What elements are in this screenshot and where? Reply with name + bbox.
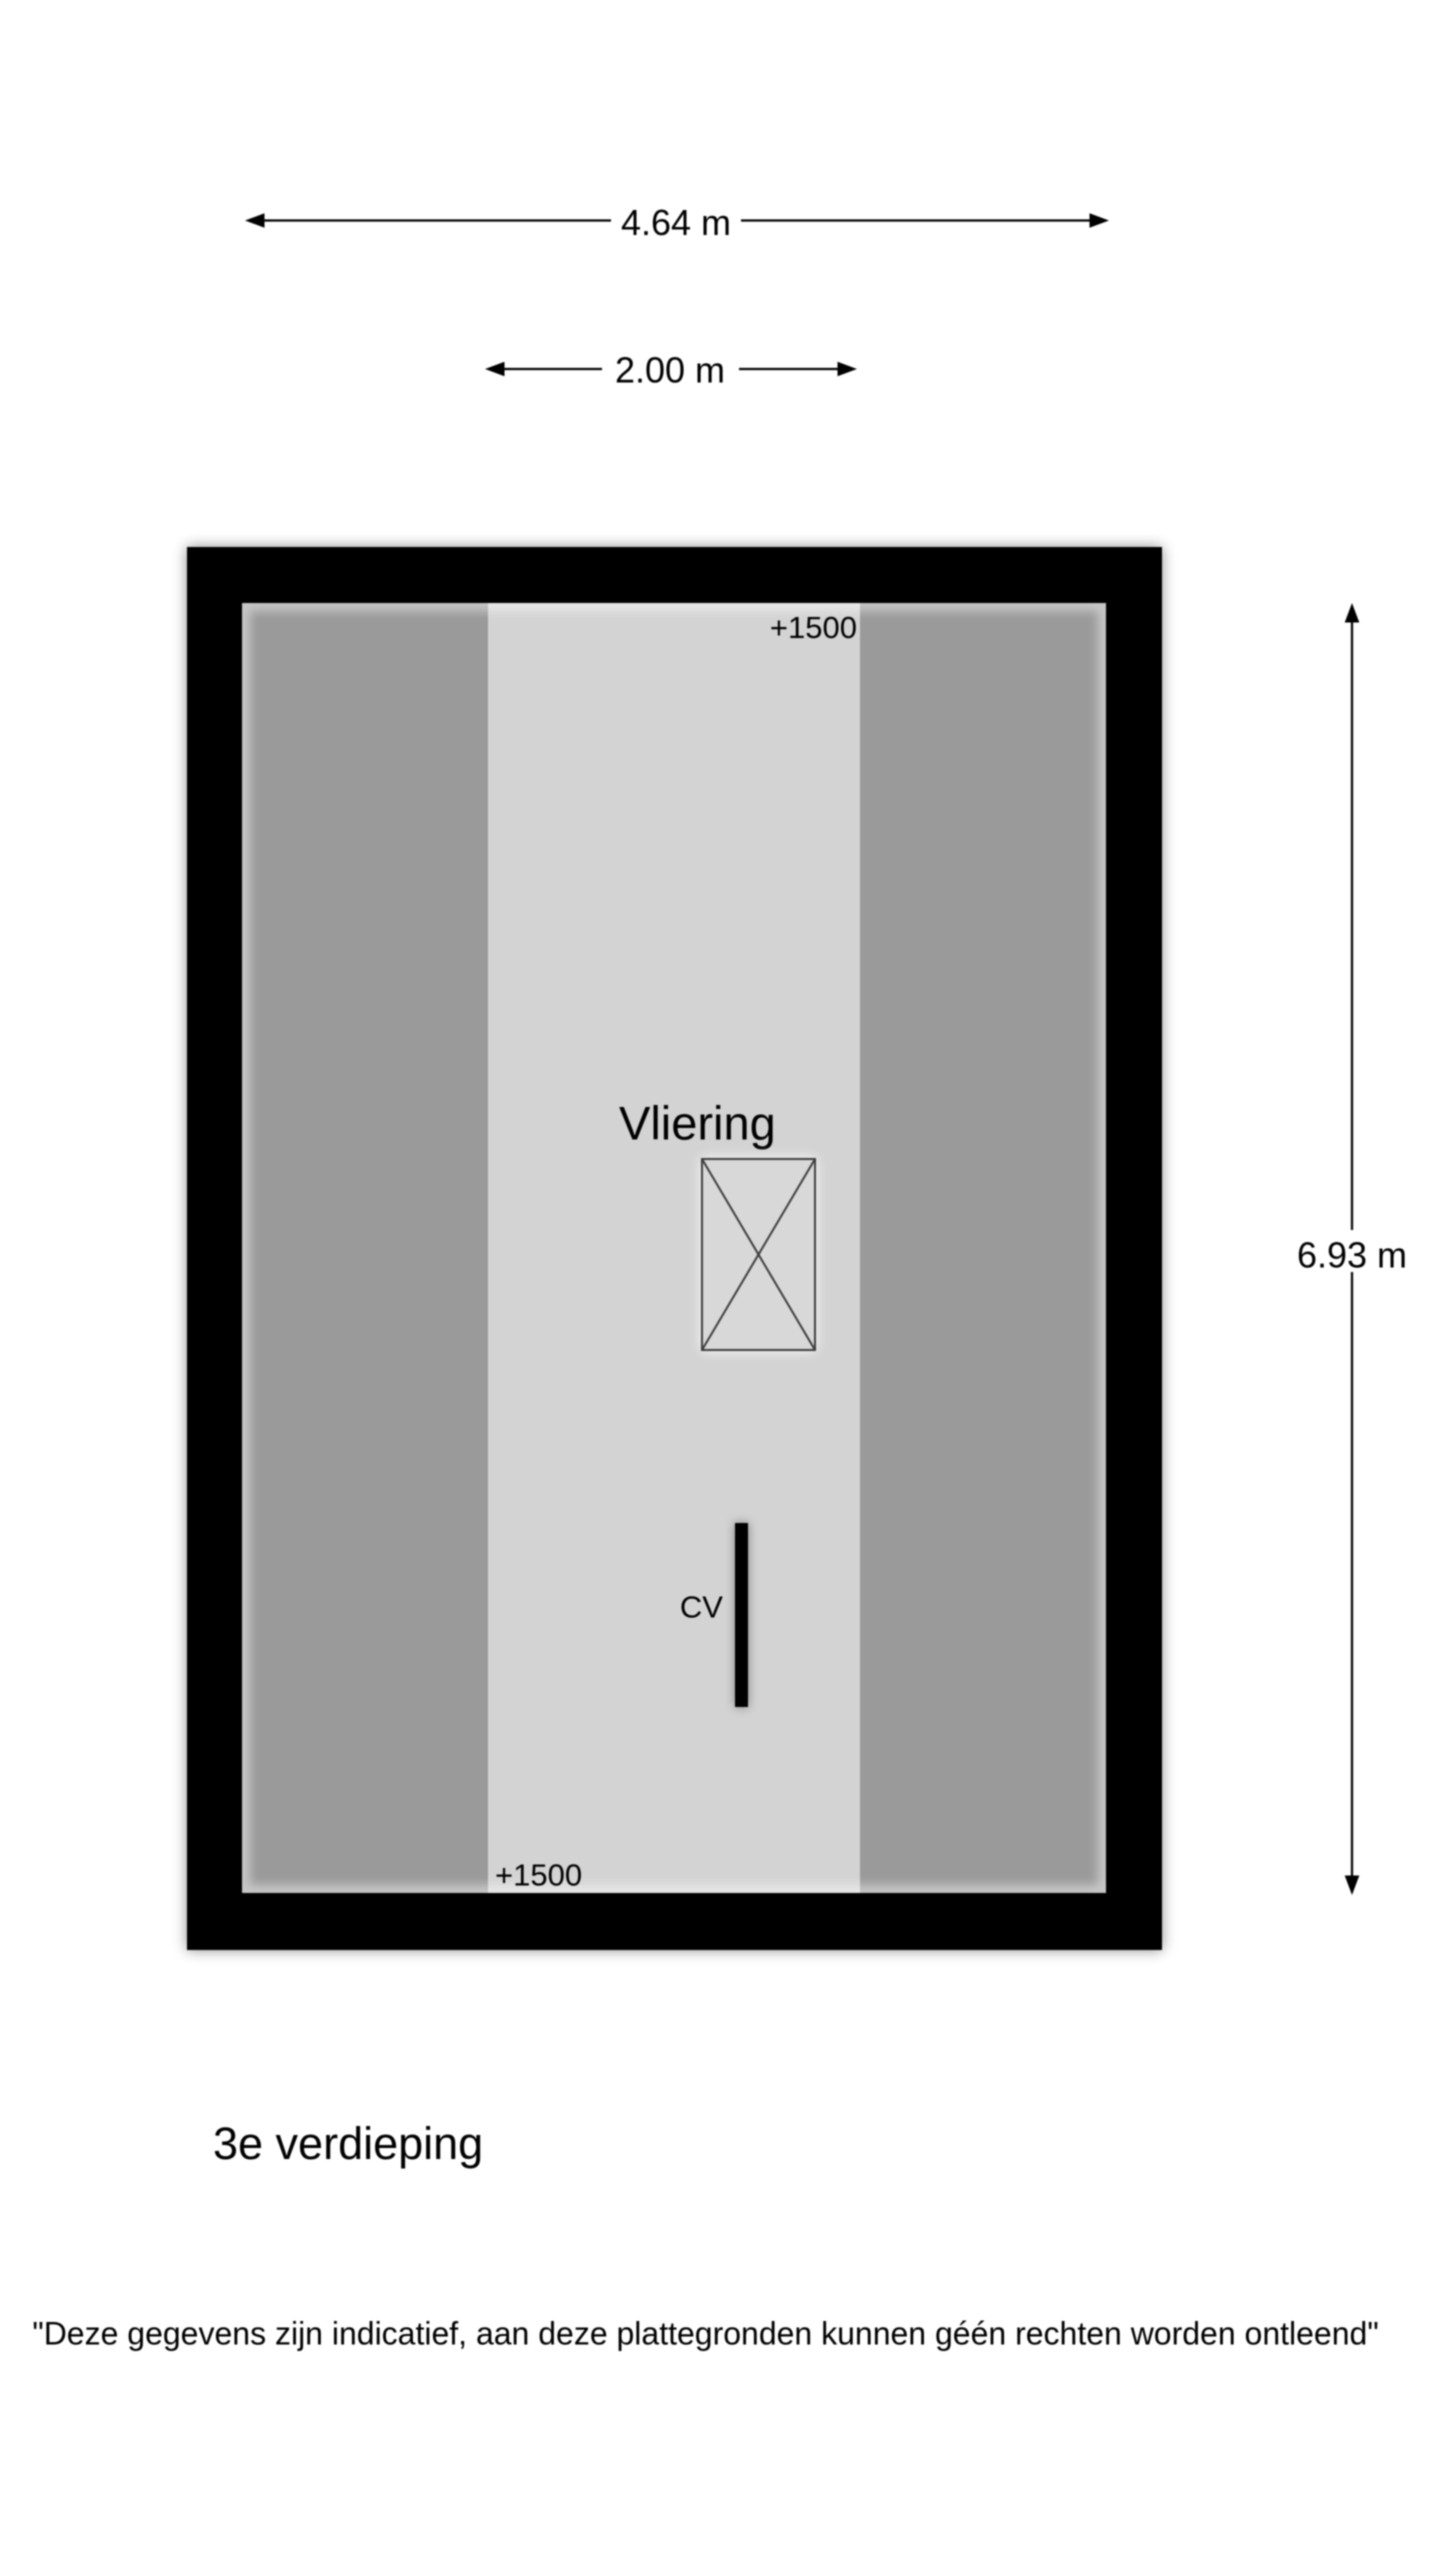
svg-text:2.00 m: 2.00 m	[615, 350, 725, 391]
svg-text:+1500: +1500	[495, 1858, 582, 1893]
svg-text:Vliering: Vliering	[619, 1097, 776, 1150]
svg-text:"Deze gegevens zijn indicatief: "Deze gegevens zijn indicatief, aan deze…	[32, 2316, 1378, 2352]
svg-text:3e verdieping: 3e verdieping	[213, 2118, 483, 2169]
svg-text:CV: CV	[680, 1590, 723, 1625]
svg-text:4.64 m: 4.64 m	[621, 202, 731, 243]
svg-text:+1500: +1500	[770, 610, 857, 645]
svg-text:6.93 m: 6.93 m	[1297, 1235, 1407, 1276]
